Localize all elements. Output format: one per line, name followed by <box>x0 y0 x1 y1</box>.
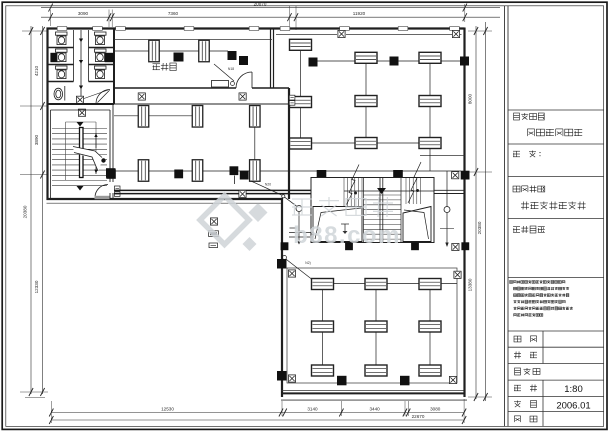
svg-text:20070: 20070 <box>254 2 267 7</box>
svg-text:22670: 22670 <box>412 414 425 419</box>
svg-text:3090: 3090 <box>78 11 89 16</box>
svg-text:3140: 3140 <box>307 407 318 412</box>
svg-text:1:80: 1:80 <box>564 384 583 395</box>
svg-text:13380: 13380 <box>468 278 473 291</box>
svg-text:20380: 20380 <box>477 221 482 234</box>
svg-text:3890: 3890 <box>34 134 39 145</box>
svg-text:20380: 20380 <box>23 205 28 218</box>
svg-text:7360: 7360 <box>168 11 179 16</box>
svg-text:8000: 8000 <box>468 93 473 104</box>
svg-text:3440: 3440 <box>369 407 380 412</box>
svg-text:N20: N20 <box>265 183 271 187</box>
svg-text:2006.01: 2006.01 <box>556 401 590 412</box>
svg-text:11920: 11920 <box>353 11 366 16</box>
svg-text:12530: 12530 <box>161 407 174 412</box>
svg-text:N2): N2) <box>305 261 310 265</box>
svg-text:12330: 12330 <box>34 280 39 293</box>
svg-text:b88.com: b88.com <box>293 222 401 249</box>
svg-text:3080: 3080 <box>430 407 441 412</box>
svg-text:N18: N18 <box>228 67 234 71</box>
svg-text:4210: 4210 <box>34 65 39 76</box>
